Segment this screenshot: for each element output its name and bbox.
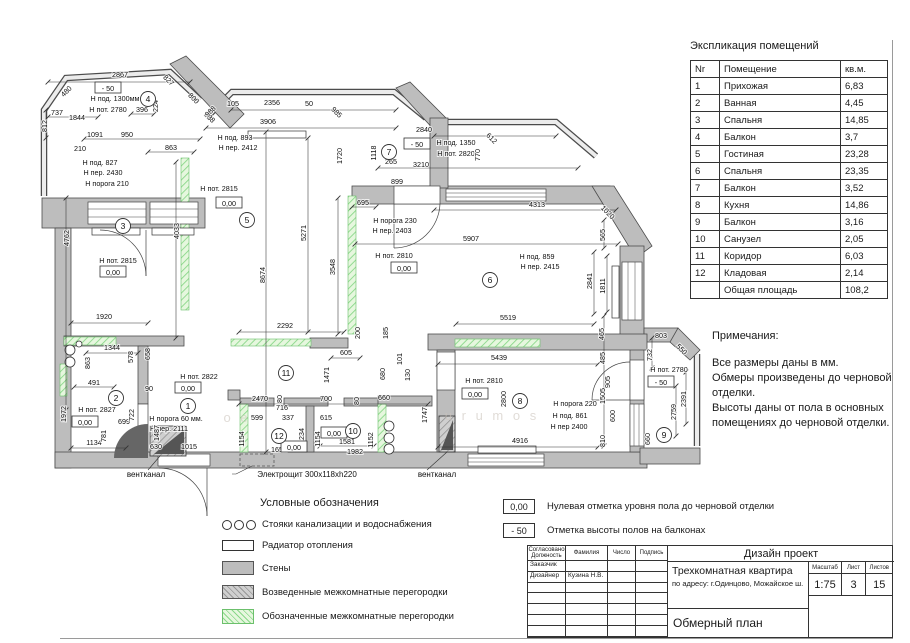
dimension-label: 770 xyxy=(473,149,482,161)
dimension-label: 90 xyxy=(145,384,153,393)
drawing-name-cell: Обмерный план xyxy=(668,608,809,637)
height-note: Н пер 2400 xyxy=(550,422,587,431)
dimension-label: 130 xyxy=(403,369,412,381)
riser xyxy=(384,421,394,431)
table-cell: 3,16 xyxy=(841,214,888,231)
entrance-door-arc xyxy=(159,468,207,516)
dimension-label: 600 xyxy=(608,410,617,422)
drawing-sheet: { "colors": { "wall_fill": "#bdbdbd", "w… xyxy=(0,0,910,643)
dimension-label: 1811 xyxy=(598,278,607,293)
height-note: Н пер. 2412 xyxy=(218,143,257,152)
table-cell: Спальня xyxy=(720,163,841,180)
dimension-label: 905 xyxy=(603,376,612,388)
level-mark-box: 0,00 xyxy=(503,499,535,514)
table-cell: 4,45 xyxy=(841,95,888,112)
dimension-label: 200 xyxy=(353,327,362,339)
room-number: 7 xyxy=(387,147,392,157)
dimension-label: 803 xyxy=(655,331,667,340)
signature-cell xyxy=(636,572,668,583)
signature-header-cell: Фамилия xyxy=(566,546,608,561)
signature-cell xyxy=(566,593,608,604)
level-mark-row: - 50Отметка высоты полов на балконах xyxy=(503,523,803,538)
signature-cell xyxy=(636,604,668,615)
table-cell: 6,83 xyxy=(841,78,888,95)
legend-label: Возведенные межкомнатные перегородки xyxy=(262,587,448,598)
signature-cell xyxy=(528,626,566,637)
signature-cell xyxy=(608,593,636,604)
table-row: 7Балкон3,52 xyxy=(691,180,888,197)
dimension-label: 80 xyxy=(275,395,284,403)
dimension-label: 337 xyxy=(282,413,294,422)
dimension-label: 2841 xyxy=(585,273,594,289)
dimension-label: 491 xyxy=(88,378,100,387)
dimension-label: Электрощит 300x118xh220 xyxy=(257,470,357,479)
dimension-label: 2867 xyxy=(112,70,128,79)
object-address: по адресу: г.Одинцово, Можайское ш. xyxy=(672,579,804,588)
dimension-label: 1982 xyxy=(347,447,363,456)
drawing-name: Обмерный план xyxy=(673,616,763,630)
signature-header-cell: Число xyxy=(608,546,636,561)
object-name: Трехкомнатная квартира xyxy=(672,565,804,577)
signature-row xyxy=(528,583,668,594)
level-mark-value: 0,00 xyxy=(327,429,341,438)
signature-cell xyxy=(608,615,636,626)
level-mark-value: 0,00 xyxy=(397,264,411,273)
table-header-cell: Помещение xyxy=(720,61,841,78)
dimension-label: 8674 xyxy=(258,267,267,283)
sheet-value-cell: 3 xyxy=(842,574,866,596)
object-cell: Трехкомнатная квартира по адресу: г.Один… xyxy=(668,562,809,608)
height-note: Н пот. 2780 xyxy=(650,365,687,374)
signature-cell xyxy=(566,561,608,572)
signature-row xyxy=(528,604,668,615)
dimension-label: 612 xyxy=(484,131,499,146)
height-note: Н под. 1350 xyxy=(436,138,475,147)
dimension-label: 660 xyxy=(643,433,652,445)
dimension-label: 5439 xyxy=(491,353,507,362)
table-cell: 7 xyxy=(691,180,720,197)
legend-item: Стены xyxy=(222,561,522,575)
signature-cell xyxy=(528,604,566,615)
sheets-label: Листов xyxy=(870,565,890,571)
dimension-label: 605 xyxy=(340,348,352,357)
signature-cell xyxy=(608,583,636,594)
sheets-header-cell: Листов xyxy=(866,562,893,574)
dimension-label: 80 xyxy=(352,397,361,405)
dimension-label: 3906 xyxy=(260,117,276,126)
dimension-label: 722 xyxy=(127,409,136,421)
notes-panel: Примечания: Все размеры даны в мм. Обмер… xyxy=(712,330,902,431)
door-opening xyxy=(394,186,440,204)
level-mark-value: - 50 xyxy=(102,84,114,93)
signature-cell xyxy=(636,615,668,626)
project-type-cell: Дизайн проект xyxy=(668,546,894,562)
dimension-label: 578 xyxy=(126,351,135,363)
dimension-label: 2470 xyxy=(252,394,268,403)
legend-label: Стояки канализации и водоснабжения xyxy=(262,519,432,530)
scale-value-cell: 1:75 xyxy=(809,574,842,596)
signature-cell xyxy=(528,583,566,594)
explication-table: NrПомещениекв.м.1Прихожая6,832Ванная4,45… xyxy=(690,60,888,299)
level-mark-value: 0,00 xyxy=(106,268,120,277)
wall xyxy=(640,448,700,464)
project-type: Дизайн проект xyxy=(744,548,818,560)
dimension-label: 2840 xyxy=(416,125,432,134)
dimension-label: 899 xyxy=(391,177,403,186)
table-cell: Балкон xyxy=(720,180,841,197)
window xyxy=(468,454,544,466)
table-cell: 12 xyxy=(691,265,720,282)
signature-cell xyxy=(566,604,608,615)
dimension-label: 5271 xyxy=(299,225,308,241)
height-note: Н пот. 2820 xyxy=(437,149,474,158)
dimension-label: 2391 xyxy=(679,391,688,407)
dimension-label: 5519 xyxy=(500,313,516,322)
dimension-label: 863 xyxy=(165,143,177,152)
signature-header-cell: Согласовано Должность xyxy=(528,546,566,561)
dimension-label: 1091 xyxy=(87,130,103,139)
signature-cell xyxy=(566,626,608,637)
room-number: 10 xyxy=(348,426,358,436)
dimension-label: 2759 xyxy=(669,404,678,420)
level-mark-value: 0,00 xyxy=(181,384,195,393)
table-cell: Прихожая xyxy=(720,78,841,95)
signature-row xyxy=(528,593,668,604)
height-note: Н пот. 2827 xyxy=(78,405,115,414)
signature-row: ДизайнерКузина Н.В. xyxy=(528,572,668,583)
room-number: 11 xyxy=(282,368,291,378)
dimension-label: 4313 xyxy=(529,200,545,209)
table-cell: 14,86 xyxy=(841,197,888,214)
dimension-label: 1920 xyxy=(96,312,112,321)
height-note: Н порога 210 xyxy=(85,179,129,188)
door-opening xyxy=(437,352,455,390)
table-row: 8Кухня14,86 xyxy=(691,197,888,214)
riser xyxy=(384,444,394,454)
table-cell: 3,52 xyxy=(841,180,888,197)
wall xyxy=(228,390,240,400)
table-cell: Ванная xyxy=(720,95,841,112)
dimension-label: 660 xyxy=(378,393,390,402)
plan-annotations: о еu r u m o s28677371844396109195021086… xyxy=(40,70,689,479)
level-mark-label: Отметка высоты полов на балконах xyxy=(547,525,705,536)
room-number: 6 xyxy=(488,275,493,285)
level-mark-row: 0,00Нулевая отметка уровня пола до черно… xyxy=(503,499,803,514)
signature-header-row: Согласовано ДолжностьФамилияЧислоПодпись xyxy=(528,546,668,561)
room-number: 3 xyxy=(121,221,126,231)
signature-cell: Дизайнер xyxy=(528,572,566,583)
table-row: 10Санузел2,05 xyxy=(691,231,888,248)
dimension-label: 985 xyxy=(329,105,344,120)
dimension-label: 2292 xyxy=(277,321,293,330)
signature-cell: Кузина Н.В. xyxy=(566,572,608,583)
table-row: 2Ванная4,45 xyxy=(691,95,888,112)
dimension-label: 1471 xyxy=(322,367,331,383)
dimension-label: 700 xyxy=(320,394,332,403)
legend-label: Обозначенные межкомнатные перегородки xyxy=(262,611,454,622)
dimension-label: 599 xyxy=(251,413,263,422)
signature-cell xyxy=(528,615,566,626)
dimension-label: 1154 xyxy=(237,431,246,446)
level-mark-value: 0,00 xyxy=(78,418,92,427)
signature-cell xyxy=(636,593,668,604)
signature-cell xyxy=(636,626,668,637)
table-cell: 10 xyxy=(691,231,720,248)
dimension-label: 105 xyxy=(227,99,239,108)
table-header-row: NrПомещениекв.м. xyxy=(691,61,888,78)
door-opening xyxy=(630,360,644,400)
dimension-label: 615 xyxy=(320,413,332,422)
dimension-label: 1972 xyxy=(59,406,68,422)
marked-partition xyxy=(348,196,356,334)
level-mark-box: - 50 xyxy=(503,523,535,538)
legend-item: Обозначенные межкомнатные перегородки xyxy=(222,609,522,624)
table-row: 3Спальня14,85 xyxy=(691,112,888,129)
notes-title: Примечания: xyxy=(712,330,902,342)
level-mark-value: 0,00 xyxy=(287,443,301,452)
height-note: Н под. 859 xyxy=(519,252,554,261)
height-note: Н пер. 2403 xyxy=(372,226,411,235)
height-note: Н порога 230 xyxy=(373,216,417,225)
signature-cell xyxy=(636,583,668,594)
table-cell: 14,85 xyxy=(841,112,888,129)
room-number: 5 xyxy=(245,215,250,225)
table-cell: 108,2 xyxy=(841,282,888,299)
built-icon xyxy=(222,585,258,599)
table-cell: 6 xyxy=(691,163,720,180)
table-cell: 23,28 xyxy=(841,146,888,163)
door-wedge xyxy=(114,424,148,458)
table-cell: 6,03 xyxy=(841,248,888,265)
signature-cell xyxy=(636,561,668,572)
level-mark-value: - 50 xyxy=(411,140,423,149)
height-note: Н пер. 2415 xyxy=(520,262,559,271)
table-cell: 23,35 xyxy=(841,163,888,180)
table-header-cell: кв.м. xyxy=(841,61,888,78)
height-note: Н пот. 2815 xyxy=(200,184,237,193)
riser xyxy=(65,357,75,367)
height-note: Н пот. 2780 xyxy=(89,105,126,114)
scale-label: Масштаб xyxy=(812,565,838,571)
room-number: 4 xyxy=(146,94,151,104)
table-cell: Спальня xyxy=(720,112,841,129)
signature-cell xyxy=(608,604,636,615)
level-mark-value: 0,00 xyxy=(222,199,236,208)
signature-row xyxy=(528,626,668,637)
risers-icon xyxy=(222,520,258,530)
dimension-label: 465 xyxy=(597,328,606,340)
dimension-label: 1344 xyxy=(104,343,120,352)
dimension-label: 658 xyxy=(143,348,152,360)
height-note: Н под. 1300мм xyxy=(91,94,140,103)
signature-row: Заказчик xyxy=(528,561,668,572)
height-note: Н пот. 2822 xyxy=(180,372,217,381)
dimension-label: 1505 xyxy=(598,388,607,404)
table-cell: 8 xyxy=(691,197,720,214)
dimension-label: 4762 xyxy=(62,230,71,246)
marked-partition xyxy=(231,339,311,346)
dimension-label: 210 xyxy=(74,144,86,153)
window xyxy=(630,404,644,446)
table-row: 1Прихожая6,83 xyxy=(691,78,888,95)
radiator-icon xyxy=(222,540,258,551)
sheets-value-cell: 15 xyxy=(866,574,893,596)
title-block-signatures: Согласовано ДолжностьФамилияЧислоПодпись… xyxy=(528,546,668,637)
dimension-label: 1487 xyxy=(152,425,161,441)
dimension-label: 3548 xyxy=(328,259,337,275)
sheet-header-cell: Лист xyxy=(842,562,866,574)
height-note: Н под. 827 xyxy=(82,158,117,167)
riser xyxy=(384,433,394,443)
height-note: Н пот. 2810 xyxy=(465,376,502,385)
height-note: Н под. 861 xyxy=(552,411,587,420)
radiator xyxy=(612,266,619,318)
height-note: Н порога 220 xyxy=(553,399,597,408)
dimension-label: 50 xyxy=(305,99,313,108)
dimension-label: 1844 xyxy=(69,113,85,122)
sheet-value: 3 xyxy=(850,579,856,591)
dimension-label: 3210 xyxy=(413,160,429,169)
window xyxy=(150,202,198,224)
dimension-label: 1720 xyxy=(335,148,344,164)
table-cell: 9 xyxy=(691,214,720,231)
dimension-label: 737 xyxy=(51,108,63,117)
dimension-label: 101 xyxy=(395,353,404,365)
dimension-label: вентканал xyxy=(418,470,457,479)
table-cell: 4 xyxy=(691,129,720,146)
sheets-value: 15 xyxy=(873,579,885,591)
dimension-label: 1152 xyxy=(366,432,375,447)
table-row: 11Коридор6,03 xyxy=(691,248,888,265)
table-cell: Кладовая xyxy=(720,265,841,282)
table-cell: 2,05 xyxy=(841,231,888,248)
legend-label: Радиатор отопления xyxy=(262,540,353,551)
signature-header-cell: Подпись xyxy=(636,546,668,561)
table-cell: Балкон xyxy=(720,129,841,146)
signature-cell xyxy=(528,593,566,604)
table-row: 5Гостиная23,28 xyxy=(691,146,888,163)
height-note: Н порога 60 мм. xyxy=(149,414,202,423)
table-row: 12Кладовая2,14 xyxy=(691,265,888,282)
dimension-label: 5907 xyxy=(463,234,479,243)
table-row: 6Спальня23,35 xyxy=(691,163,888,180)
table-cell: Гостиная xyxy=(720,146,841,163)
table-row: 9Балкон3,16 xyxy=(691,214,888,231)
height-note: Н пот. 2815 xyxy=(99,256,136,265)
level-mark-value: 0,00 xyxy=(468,390,482,399)
table-cell: 3 xyxy=(691,112,720,129)
dimension-label: 4033 xyxy=(172,223,181,239)
riser xyxy=(65,345,75,355)
table-cell: 1 xyxy=(691,78,720,95)
table-cell xyxy=(691,282,720,299)
height-note: Н под. 893 xyxy=(217,133,252,142)
notes-body: Все размеры даны в мм. Обмеры произведен… xyxy=(712,356,902,431)
legend-title: Условные обозначения xyxy=(260,497,522,509)
window xyxy=(622,262,642,320)
marked-icon xyxy=(222,609,258,624)
table-cell: Балкон xyxy=(720,214,841,231)
sheet-label: Лист xyxy=(847,565,860,571)
legend-item: Радиатор отопления xyxy=(222,540,522,551)
table-row: Общая площадь108,2 xyxy=(691,282,888,299)
table-cell: Санузел xyxy=(720,231,841,248)
signature-cell xyxy=(566,583,608,594)
level-mark-value: - 50 xyxy=(655,378,667,387)
wall xyxy=(310,338,348,348)
explication-panel: Экспликация помещений NrПомещениекв.м.1П… xyxy=(690,40,890,299)
dimension-label: 810 xyxy=(598,435,607,447)
dimension-label: 732 xyxy=(645,349,654,361)
dimension-label: 1118 xyxy=(369,146,378,161)
table-cell: 3,7 xyxy=(841,129,888,146)
riser xyxy=(76,341,82,347)
watermark: о е xyxy=(223,410,250,425)
scale-header-cell: Масштаб xyxy=(809,562,842,574)
dimension-label: 716 xyxy=(276,403,288,412)
room-number: 2 xyxy=(114,393,119,403)
signature-cell: Заказчик xyxy=(528,561,566,572)
table-cell: 11 xyxy=(691,248,720,265)
doors xyxy=(100,204,630,516)
dimension-label: 1747 xyxy=(420,407,429,423)
dimension-label: 695 xyxy=(357,198,369,207)
title-block: Согласовано ДолжностьФамилияЧислоПодпись… xyxy=(527,545,893,638)
legend-item: Стояки канализации и водоснабжения xyxy=(222,519,522,530)
room-number: 9 xyxy=(662,430,667,440)
dimension-label: 781 xyxy=(99,430,108,442)
dimension-label: 1015 xyxy=(181,442,197,451)
dimension-label: 565 xyxy=(598,229,607,241)
window xyxy=(88,202,146,224)
legend-label: Стены xyxy=(262,563,290,574)
dimension-label: 2356 xyxy=(264,98,280,107)
level-mark-label: Нулевая отметка уровня пола до черновой … xyxy=(547,501,774,512)
height-note: Н пот. 2810 xyxy=(375,251,412,260)
signature-cell xyxy=(608,626,636,637)
signature-row xyxy=(528,615,668,626)
dimension-label: 950 xyxy=(121,130,133,139)
dimension-label: 812 xyxy=(40,120,49,132)
signature-cell xyxy=(608,561,636,572)
table-cell: 5 xyxy=(691,146,720,163)
dimension-label: 185 xyxy=(381,327,390,339)
radiator xyxy=(248,131,306,138)
signature-cell xyxy=(608,572,636,583)
dimension-label: 630 xyxy=(150,442,162,451)
legend-panel: Условные обозначения Стояки канализации … xyxy=(222,497,522,634)
table-header-cell: Nr xyxy=(691,61,720,78)
watermark: u r u m o s xyxy=(445,408,539,423)
room-number: 12 xyxy=(274,431,284,441)
dimension-label: 4916 xyxy=(512,436,528,445)
room-number: 1 xyxy=(186,401,191,411)
table-cell: 2,14 xyxy=(841,265,888,282)
signature-cell xyxy=(566,615,608,626)
dimension-label: 680 xyxy=(378,368,387,380)
legend-item: Возведенные межкомнатные перегородки xyxy=(222,585,522,599)
legend-items: Стояки канализации и водоснабженияРадиат… xyxy=(222,519,522,624)
marked-partition xyxy=(455,339,540,347)
room-number: 8 xyxy=(518,396,523,406)
table-cell: Кухня xyxy=(720,197,841,214)
explication-title: Экспликация помещений xyxy=(690,40,890,52)
height-note: Н пер. 2430 xyxy=(83,168,122,177)
dimension-label: вентканал xyxy=(127,470,166,479)
dimension-label: 863 xyxy=(83,357,92,369)
wall-icon xyxy=(222,561,258,575)
table-cell: Общая площадь xyxy=(720,282,841,299)
